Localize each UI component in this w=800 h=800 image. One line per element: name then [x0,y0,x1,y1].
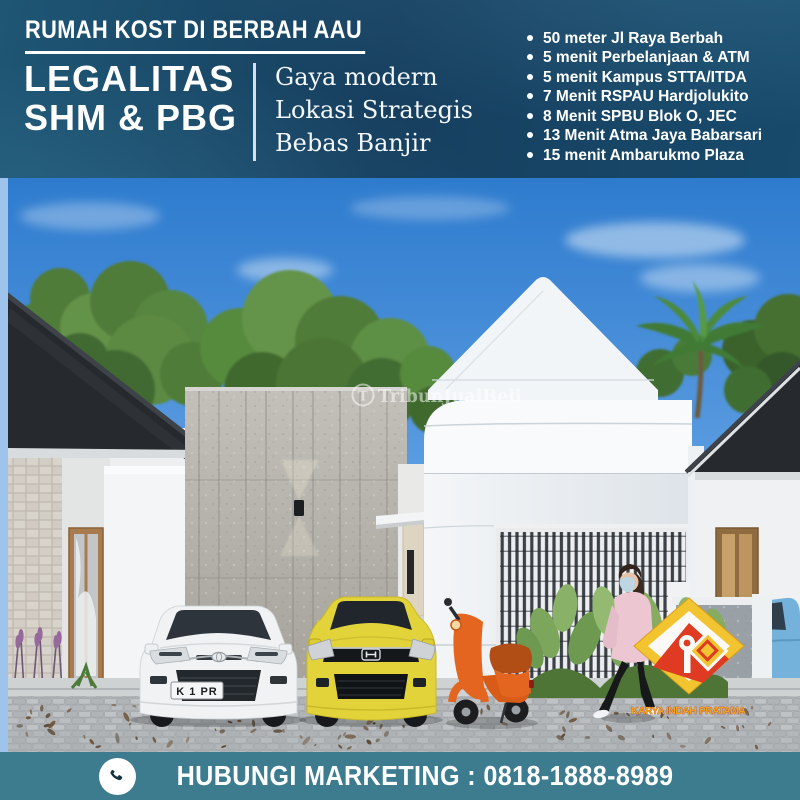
render-edge [0,178,8,752]
feature-item: Lokasi Strategis [275,94,473,127]
footer-band: HUBUNGI MARKETING : 0818-1888-8989 [0,752,800,800]
poster: RUMAH KOST DI BERBAH AAU LEGALITAS SHM &… [0,0,800,800]
feature-item: Gaya modern [275,61,473,94]
legality-block: LEGALITAS SHM & PBG Gaya modern Lokasi S… [24,60,473,161]
poster-title: RUMAH KOST DI BERBAH AAU [25,16,366,54]
header-band: RUMAH KOST DI BERBAH AAU LEGALITAS SHM &… [0,0,800,178]
distance-item: 8 Menit SPBU Blok O, JEC [527,107,762,126]
distance-item: 7 Menit RSPAU Hardjolukito [527,87,762,106]
phone-icon [99,758,136,795]
svg-text:K 1 PR: K 1 PR [176,686,217,698]
feature-item: Bebas Banjir [275,127,473,160]
legality-line1: LEGALITAS [24,60,237,99]
distance-list: 50 meter Jl Raya Berbah 5 menit Perbelan… [527,29,762,165]
right-house-door [716,528,758,608]
contact-text: HUBUNGI MARKETING : 0818-1888-8989 [177,760,674,792]
scene-svg: K 1 PR [0,178,800,752]
legality-text: LEGALITAS SHM & PBG [24,60,237,161]
house-render: K 1 PR [0,178,800,752]
license-plate: K 1 PR [171,682,223,699]
svg-text:TribunJualBeli: TribunJualBeli [378,387,522,407]
distance-item: 13 Menit Atma Jaya Babarsari [527,126,762,145]
honda-emblem [362,649,380,660]
watermark: T TribunJualBeli [353,385,522,408]
toyota-emblem [212,652,226,661]
vertical-divider [253,63,256,161]
feature-list: Gaya modern Lokasi Strategis Bebas Banji… [275,60,473,161]
distance-item: 5 menit Perbelanjaan & ATM [527,48,762,67]
svg-text:T: T [358,390,368,405]
distance-item: 15 menit Ambarukmo Plaza [527,146,762,165]
distance-item: 50 meter Jl Raya Berbah [527,29,762,48]
legality-line2: SHM & PBG [24,99,237,138]
wood-window [69,528,103,684]
distance-item: 5 menit Kampus STTA/ITDA [527,68,762,87]
svg-text:KARYA INDAH PRATAMA: KARYA INDAH PRATAMA [631,705,747,717]
